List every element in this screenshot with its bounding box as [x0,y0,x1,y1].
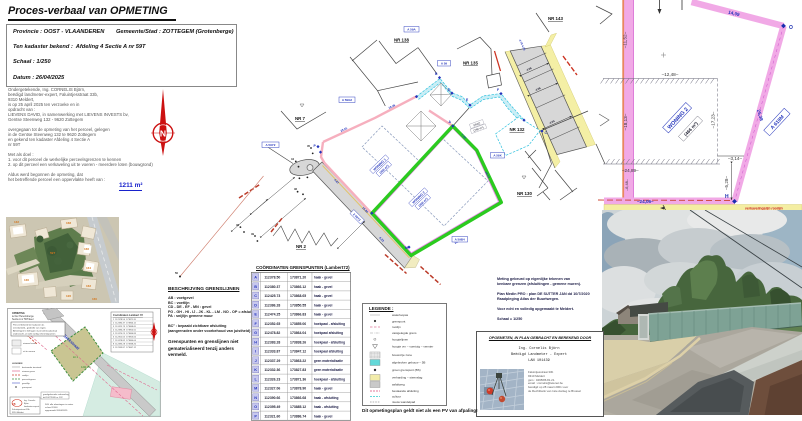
svg-text:grenspunt: grenspunt [22,386,32,389]
svg-text:Coördinaten Lambert 72: Coördinaten Lambert 72 [113,313,143,317]
svg-text:NR 143: NR 143 [548,16,563,21]
svg-text:hoekpaal - afsluiting: hoekpaal - afsluiting [314,340,345,344]
svg-text:A: A [449,120,452,124]
svg-text:164: 164 [86,266,91,270]
svg-text:vastgelegde grens: vastgelegde grens [392,331,417,335]
svg-text:8 112383.28 173838.26: 8 112383.28 173838.26 [113,344,137,346]
svg-text:50: 50 [175,271,178,275]
svg-text:112474.25: 112474.25 [264,313,280,317]
svg-text:E: E [254,312,257,317]
svg-text:nieuwe kavel: nieuwe kavel [23,343,36,345]
svg-text:–5,28–: –5,28– [724,176,729,190]
svg-text:9 112333.87 173847.12: 9 112333.87 173847.12 [113,347,137,349]
svg-text:CB: CB [12,403,16,406]
svg-text:173855.06: 173855.06 [290,322,306,326]
svg-text:112390.66: 112390.66 [264,396,280,400]
svg-text:rooilijn: rooilijn [22,374,29,377]
svg-text:173878.90: 173878.90 [290,386,306,390]
svg-text:Sectie A nr 59T/deel: Sectie A nr 59T/deel [12,318,34,321]
svg-text:haak - gevel: haak - gevel [314,303,333,307]
svg-text:112378.50: 112378.50 [264,276,280,280]
svg-text:F: F [497,88,499,92]
svg-text:166: 166 [84,247,89,251]
svg-text:haak - gevel: haak - gevel [314,294,333,298]
svg-text:A 59A: A 59A [407,28,416,32]
svg-text:onderzocht, uit volle wettig r: onderzocht, uit volle wettig referentiep… [13,333,56,336]
svg-text:Ing. Cornelis: Ing. Cornelis [24,400,35,402]
svg-text:J: J [255,358,257,363]
svg-text:173885.12: 173885.12 [290,405,306,409]
svg-text:K: K [254,367,257,372]
svg-text:eerstkanteld - gedeelte van re: eerstkanteld - gedeelte van regen. [13,327,47,330]
svg-text:haak - gevel: haak - gevel [314,285,333,289]
svg-text:–12,48–: –12,48– [662,72,679,77]
svg-text:goedgekeurde verkaveling: goedgekeurde verkaveling [43,393,69,396]
svg-text:B: B [254,284,257,289]
svg-text:NR 135: NR 135 [463,61,478,66]
svg-text:126: 126 [66,294,71,298]
svg-text:112383.28: 112383.28 [264,340,280,344]
svg-text:4 112386.28 173850.55: 4 112386.28 173850.55 [113,330,137,332]
svg-text:173838.26: 173838.26 [290,340,306,344]
svg-text:112333.87: 112333.87 [264,350,280,354]
svg-text:hoekpaal afsluiting: hoekpaal afsluiting [314,331,343,335]
svg-text:P: P [254,413,257,418]
svg-text:49: 49 [251,232,254,236]
svg-text:haak - gevel: haak - gevel [314,276,333,280]
svg-text:9310 Meldert: 9310 Meldert [12,411,24,414]
svg-text:Perceel bekend ten kadaster al: Perceel bekend ten kadaster als [13,324,45,327]
svg-text:112395.49: 112395.49 [264,405,280,409]
svg-text:G: G [254,330,257,335]
svg-text:130: 130 [24,278,29,282]
svg-text:162: 162 [86,284,91,288]
svg-text:B: B [435,72,438,76]
svg-text:132: 132 [14,220,19,224]
svg-text:cultuur: cultuur [392,395,401,399]
svg-text:173886.74: 173886.74 [290,414,306,418]
svg-text:–6,48–: –6,48– [625,178,629,191]
svg-text:O: O [789,25,793,31]
svg-text:A 59B4: A 59B4 [455,238,465,242]
svg-text:112332.36: 112332.36 [264,368,280,372]
svg-text:opgemaakt 26/04/2025: opgemaakt 26/04/2025 [45,409,68,412]
svg-text:haak - gevel: haak - gevel [314,386,333,390]
svg-text:NR 7: NR 7 [295,116,306,121]
svg-text:–3,14–: –3,14– [728,156,742,161]
svg-text:NR 130: NR 130 [517,191,532,196]
svg-text:–24,06–: –24,06– [637,199,654,204]
svg-text:173863.22: 173863.22 [290,359,306,363]
svg-text:–11,52–: –11,52– [623,31,628,48]
svg-text:afgebroken gebouw – 5B: afgebroken gebouw – 5B [392,361,425,365]
svg-text:hoogte vm – voertuig – venster: hoogte vm – voertuig – venster [392,344,433,348]
svg-text:1211 m²: 1211 m² [81,365,90,369]
svg-text:3 112425.73 173868.65: 3 112425.73 173868.65 [113,326,137,328]
svg-text:bestaande afsluiting: bestaande afsluiting [392,389,419,393]
svg-text:uit te voeren: uit te voeren [23,350,36,353]
svg-text:haak - afsluiting: haak - afsluiting [314,396,339,400]
svg-text:E: E [466,98,469,102]
svg-text:–24,89–: –24,89– [622,168,639,173]
svg-text:C: C [254,293,257,298]
svg-text:ʘ: ʘ [374,338,377,342]
svg-text:A 59Y2: A 59Y2 [266,143,276,147]
svg-text:112352.65: 112352.65 [264,322,280,326]
svg-text:nieuw wandelpad: nieuw wandelpad [392,400,416,404]
svg-text:bouwvrije zone: bouwvrije zone [392,353,412,357]
svg-text:haak - afsluiting: haak - afsluiting [314,405,339,409]
svg-text:59T: 59T [50,251,55,255]
svg-text:A 59: A 59 [441,62,448,66]
svg-text:hoekpaal - afsluiting: hoekpaal - afsluiting [314,322,345,326]
svg-text:asfaltweg: asfaltweg [392,383,405,387]
svg-text:112425.73: 112425.73 [264,294,280,298]
svg-text:N.B. alle afmetingen in meter: N.B. alle afmetingen in meter [45,403,73,406]
svg-text:7 112478.82 173864.04: 7 112478.82 173864.04 [113,340,137,342]
svg-text:schaal 1/500: schaal 1/500 [45,407,58,409]
svg-text:46: 46 [294,187,297,191]
svg-text:nieuwe grens: nieuwe grens [22,370,36,373]
svg-text:112380.37: 112380.37 [264,285,280,289]
svg-text:A 59G2: A 59G2 [342,98,353,102]
svg-text:6 112352.65 173853.06: 6 112352.65 173853.06 [113,337,137,339]
svg-text:O: O [254,404,257,409]
svg-text:173827.83: 173827.83 [290,368,306,372]
svg-text:173868.65: 173868.65 [290,294,306,298]
svg-text:A: A [254,275,257,280]
svg-text:M: M [254,385,257,390]
svg-text:bestaande toestand: bestaande toestand [22,366,42,369]
svg-text:hoekpaal - afsluiting: hoekpaal - afsluiting [314,377,345,381]
svg-text:173864.04: 173864.04 [290,331,306,335]
svg-text:P: P [314,144,317,148]
svg-text:haak - gevel: haak - gevel [314,414,333,418]
svg-text:lot 1: lot 1 [73,355,78,359]
svg-text:5 112474.25 173866.83: 5 112474.25 173866.83 [113,333,137,335]
svg-text:rooilijn: rooilijn [392,325,401,329]
svg-text:I: I [255,349,256,354]
svg-text:waterloopas: waterloopas [392,313,409,317]
svg-text:160: 160 [92,297,97,301]
svg-text:dd 10/7/2020 nr 132: dd 10/7/2020 nr 132 [43,396,63,399]
svg-text:112386.28: 112386.28 [264,303,280,307]
svg-text:–17,23–: –17,23– [711,111,716,128]
svg-text:173871.20: 173871.20 [290,276,306,280]
svg-text:NR 138: NR 138 [394,38,409,43]
svg-text:Faluintjesstraat 33b: Faluintjesstraat 33b [12,408,30,411]
svg-text:112321.60: 112321.60 [264,414,280,418]
svg-text:173866.68: 173866.68 [290,396,306,400]
svg-text:geen materialisatie: geen materialisatie [314,359,343,363]
svg-text:perceelsgrens: perceelsgrens [22,378,37,381]
svg-text:173866.12: 173866.12 [290,285,306,289]
svg-text:168: 168 [66,221,71,225]
svg-text:H: H [254,339,257,344]
svg-text:173866.83: 173866.83 [290,313,306,317]
svg-text:112478.82: 112478.82 [264,331,280,335]
svg-text:verharding – steenslag: verharding – steenslag [392,376,423,380]
svg-text:Afmetingen te befragen in perc: Afmetingen te befragen in percelencadast… [13,330,58,333]
svg-text:173850.55: 173850.55 [290,303,306,307]
svg-text:geen materialisatie: geen materialisatie [314,368,343,372]
svg-text:groen grenspunt (BS): groen grenspunt (BS) [392,368,421,372]
svg-text:D: D [254,302,257,307]
svg-text:–18,13–: –18,13– [623,113,628,130]
svg-text:hoogtelijnen: hoogtelijnen [392,337,409,341]
svg-text:2 112380.37 173866.12: 2 112380.37 173866.12 [113,323,137,325]
svg-text:hoekpaal afsluiting: hoekpaal afsluiting [314,350,343,354]
svg-text:NR 2: NR 2 [296,244,307,249]
svg-text:A 59X: A 59X [493,154,501,158]
svg-text:173847.12: 173847.12 [290,350,306,354]
svg-text:112327.06: 112327.06 [264,386,280,390]
svg-text:Björn: Björn [24,403,29,405]
svg-text:gevellijn: gevellijn [22,383,31,385]
svg-text:112337.29: 112337.29 [264,359,280,363]
svg-text:landmeter-expert: landmeter-expert [24,405,40,408]
svg-text:M: M [405,246,408,250]
svg-text:grenspunt: grenspunt [392,319,406,323]
svg-text:haak - gevel: haak - gevel [314,313,333,317]
svg-text:N: N [254,395,257,400]
svg-text:LEGENDE: LEGENDE [12,363,23,365]
svg-text:1 112378.50 173871.20: 1 112378.50 173871.20 [113,319,137,321]
svg-text:112326.23: 112326.23 [264,377,280,381]
svg-text:NR 132: NR 132 [510,127,525,132]
svg-text:173871.36: 173871.36 [290,377,306,381]
svg-text:44: 44 [291,157,294,161]
svg-text:H: H [725,194,729,200]
svg-text:45: 45 [307,144,310,148]
